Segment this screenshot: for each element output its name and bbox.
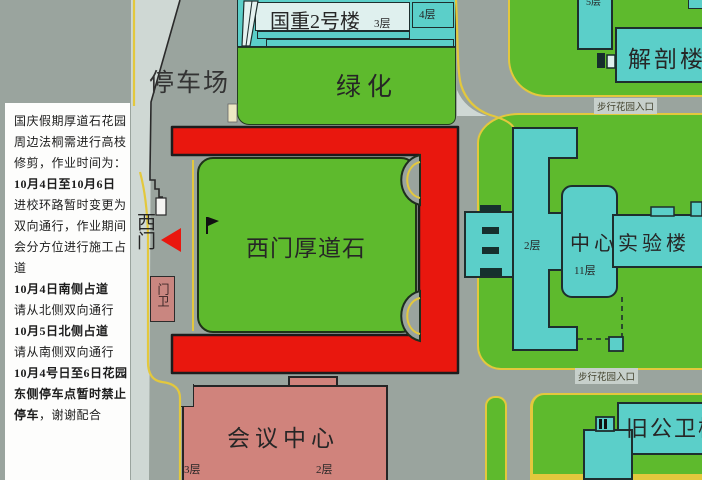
sidebar-line: 10月5日北侧占道 [14,321,125,342]
campus-map: 停车场 国重2号楼 3层 4层 绿化 解剖楼 5层 西门 门卫 西门厚道石 中心… [0,0,702,480]
central-lab-floor2-label: 2层 [524,237,541,253]
conference-floor2-label: 2层 [316,461,333,477]
west-gate-arrow [161,228,181,252]
conference-floor3-label: 3层 [184,461,201,477]
sidebar-line: 10月4日南侧占道 [14,279,125,300]
sidebar-line: 进校环路暂时变更为 [14,195,125,216]
west-gate-label: 西门 [133,212,155,250]
parking-label: 停车场 [149,63,230,99]
path-entrance-bottom-label: 步行花园入口 [575,368,638,384]
guozhong-label: 国重2号楼 [270,5,360,34]
conference-center-label: 会议中心 [227,419,339,453]
jiugongwei-label: 旧公卫楼 [626,411,702,443]
sidebar-line: 东侧停车点暂时禁止 [14,384,125,405]
central-lab-floor11-label: 11层 [574,262,596,278]
central-lab-label: 中心实验楼 [570,227,690,256]
sidebar-line: 周边法桐需进行高枝 [14,132,125,153]
anatomy-tower-floor-label: 5层 [586,0,601,8]
guozhong-strip2 [266,39,454,47]
sidebar-line: 请从南侧双向通行 [14,342,125,363]
sidebar-line: 道 [14,258,125,279]
median-strip [485,396,507,480]
greenery-label: 绿化 [336,67,398,103]
gatehouse-label: 门卫 [156,283,169,307]
curb-north-road-left [456,0,514,129]
conference-notch [181,384,194,407]
junction-sidewalk-wedge [457,90,487,116]
sidebar-line: 修剪，作业时间为： [14,153,125,174]
sidebar-line: 请从北侧双向通行 [14,300,125,321]
corner-building-piece [688,0,702,9]
corner-sign [228,104,237,122]
anatomy-label: 解剖楼 [628,40,702,74]
path-entrance-top-label: 步行花园入口 [594,98,657,114]
guozhong-floor4-label: 4层 [419,6,436,22]
sidebar-line: 双向通行，作业期间 [14,216,125,237]
houdaoshi-label: 西门厚道石 [246,229,366,263]
gate-post [156,198,166,215]
sidebar-line: 10月4号日至6日花园 [14,363,125,384]
notice-panel: 国庆假期厚道石花园周边法桐需进行高枝修剪，作业时间为：10月4日至10月6日进校… [5,103,130,480]
sidebar-line: 10月4日至10月6日 [14,174,125,195]
sidebar-line: 会分方位进行施工占 [14,237,125,258]
guozhong-floor3-label: 3层 [374,15,391,31]
sidebar-line: 国庆假期厚道石花园 [14,111,125,132]
sidebar-text: 国庆假期厚道石花园周边法桐需进行高枝修剪，作业时间为：10月4日至10月6日进校… [14,111,125,426]
sidebar-line: 停车，谢谢配合 [14,405,125,426]
